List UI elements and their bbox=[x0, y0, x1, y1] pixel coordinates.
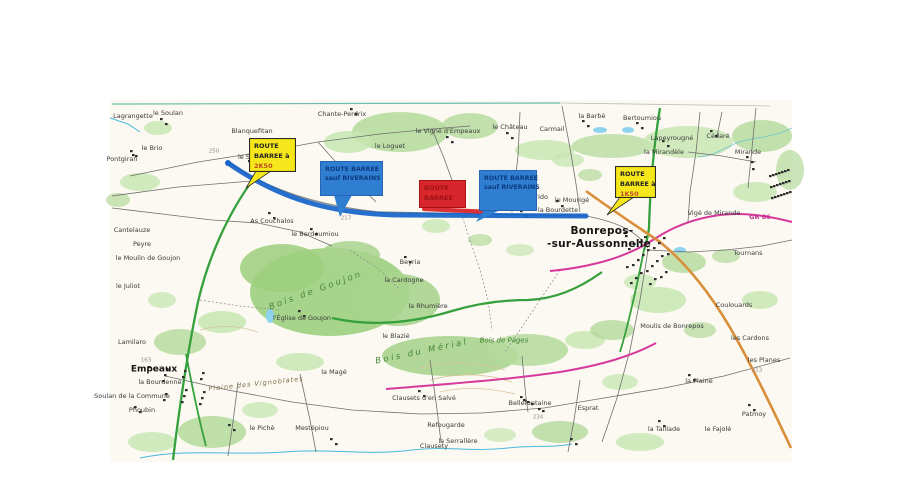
building-dot bbox=[637, 259, 640, 261]
sign-text-line: sauf RIVERAINS bbox=[484, 183, 533, 192]
building-dot bbox=[130, 150, 133, 152]
building-dot bbox=[303, 315, 306, 317]
building-dot bbox=[769, 175, 772, 177]
building-dot bbox=[647, 249, 650, 251]
building-dot bbox=[451, 141, 454, 143]
buildings bbox=[130, 108, 792, 445]
building-dot bbox=[273, 217, 276, 219]
building-dot bbox=[746, 156, 749, 158]
building-dot bbox=[628, 248, 631, 250]
building-dot bbox=[752, 168, 755, 170]
sign-text-line: BARREE à bbox=[620, 180, 652, 190]
building-dot bbox=[633, 243, 636, 245]
building-dot bbox=[587, 125, 590, 127]
building-dot bbox=[409, 261, 412, 263]
building-dot bbox=[202, 372, 205, 374]
sign-text-line: ROUTE BARREE bbox=[325, 165, 379, 174]
sign-distance: 2K50 bbox=[254, 162, 292, 172]
building-dot bbox=[782, 182, 785, 184]
building-dot bbox=[182, 376, 185, 378]
building-dot bbox=[404, 256, 407, 258]
minor-roads bbox=[112, 106, 792, 456]
building-dot bbox=[315, 233, 318, 235]
building-dot bbox=[776, 184, 779, 186]
building-dot bbox=[538, 408, 541, 410]
building-dot bbox=[665, 271, 668, 273]
building-dot bbox=[527, 401, 530, 403]
building-dot bbox=[632, 264, 635, 266]
building-dot bbox=[748, 404, 751, 406]
building-dot bbox=[561, 205, 564, 207]
building-dot bbox=[330, 438, 333, 440]
building-dot bbox=[663, 237, 666, 239]
building-dot bbox=[132, 154, 135, 156]
building-dot bbox=[162, 380, 165, 382]
sign-text-line: sauf RIVERAINS bbox=[325, 174, 379, 183]
building-dot bbox=[642, 254, 645, 256]
building-dot bbox=[771, 197, 774, 199]
building-dot bbox=[556, 200, 559, 202]
route-barree-sauf-riverains-sign-left: ROUTE BARREE sauf RIVERAINS bbox=[320, 161, 383, 196]
building-dot bbox=[183, 395, 186, 397]
building-dot bbox=[658, 420, 661, 422]
building-dot bbox=[630, 282, 633, 284]
building-dot bbox=[640, 272, 643, 274]
building-dot bbox=[160, 118, 163, 120]
building-dot bbox=[582, 120, 585, 122]
building-dot bbox=[688, 374, 691, 376]
scanned-map-page: Lagrangettele Soulanle BrioPontgiranBlan… bbox=[0, 0, 900, 482]
building-dot bbox=[446, 136, 449, 138]
building-dot bbox=[165, 123, 168, 125]
building-dot bbox=[644, 236, 647, 238]
route-barree-sauf-riverains-sign-right: ROUTE BARREE sauf RIVERAINS bbox=[479, 170, 537, 211]
building-dot bbox=[661, 255, 664, 257]
building-dot bbox=[134, 406, 137, 408]
route-barree-sign-west: ROUTE BARREE à 2K50 bbox=[249, 138, 296, 172]
building-dot bbox=[658, 242, 661, 244]
building-dot bbox=[649, 283, 652, 285]
orange-road bbox=[586, 191, 791, 448]
building-dot bbox=[335, 443, 338, 445]
building-dot bbox=[773, 185, 776, 187]
building-dot bbox=[423, 395, 426, 397]
building-dot bbox=[165, 393, 168, 395]
building-dot bbox=[784, 170, 787, 172]
building-dot bbox=[139, 411, 142, 413]
building-dot bbox=[201, 397, 204, 399]
building-dot bbox=[310, 228, 313, 230]
sign-text-line: ROUTE bbox=[254, 142, 292, 152]
building-dot bbox=[635, 277, 638, 279]
building-dot bbox=[710, 130, 713, 132]
building-dot bbox=[575, 443, 578, 445]
building-dot bbox=[774, 196, 777, 198]
building-dot bbox=[653, 247, 656, 249]
building-dot bbox=[624, 232, 627, 234]
building-dot bbox=[715, 135, 718, 137]
building-dot bbox=[164, 374, 167, 376]
building-dot bbox=[770, 186, 773, 188]
building-dot bbox=[418, 390, 421, 392]
building-dot bbox=[641, 127, 644, 129]
building-dot bbox=[185, 389, 188, 391]
sign-text-line: ROUTE BARREE bbox=[484, 174, 533, 183]
building-dot bbox=[542, 410, 545, 412]
building-dot bbox=[777, 195, 780, 197]
building-dot bbox=[786, 192, 789, 194]
building-dot bbox=[506, 132, 509, 134]
building-dot bbox=[184, 370, 187, 372]
building-dot bbox=[751, 161, 754, 163]
building-dot bbox=[663, 425, 666, 427]
building-dot bbox=[788, 180, 791, 182]
building-dot bbox=[228, 424, 231, 426]
building-dot bbox=[163, 399, 166, 401]
building-dot bbox=[753, 409, 756, 411]
building-dot bbox=[651, 265, 654, 267]
building-dot bbox=[166, 368, 169, 370]
building-dot bbox=[667, 145, 670, 147]
building-dot bbox=[355, 113, 358, 115]
building-dot bbox=[523, 399, 526, 401]
building-dot bbox=[268, 212, 271, 214]
building-dot bbox=[775, 173, 778, 175]
closed-section-red-panel: ROUTE BARREE bbox=[419, 180, 466, 208]
building-dot bbox=[298, 310, 301, 312]
building-dot bbox=[780, 194, 783, 196]
building-dot bbox=[350, 108, 353, 110]
building-dot bbox=[667, 253, 670, 255]
building-dot bbox=[654, 278, 657, 280]
building-dot bbox=[660, 276, 663, 278]
building-dot bbox=[662, 140, 665, 142]
building-dot bbox=[639, 241, 642, 243]
sign-text-line: BARREE bbox=[424, 194, 462, 204]
building-dot bbox=[787, 169, 790, 171]
building-dot bbox=[511, 137, 514, 139]
sign-distance: 1K50 bbox=[620, 190, 652, 200]
building-dot bbox=[203, 391, 206, 393]
building-dot bbox=[646, 270, 649, 272]
building-dot bbox=[531, 403, 534, 405]
building-dot bbox=[785, 181, 788, 183]
building-dot bbox=[570, 438, 573, 440]
building-dot bbox=[783, 193, 786, 195]
building-dot bbox=[781, 171, 784, 173]
sign-text-line: ROUTE bbox=[620, 170, 652, 180]
building-dot bbox=[779, 183, 782, 185]
building-dot bbox=[200, 378, 203, 380]
building-dot bbox=[772, 174, 775, 176]
building-dot bbox=[520, 396, 523, 398]
sign-text-line: BARREE à bbox=[254, 152, 292, 162]
building-dot bbox=[148, 366, 151, 368]
building-dot bbox=[693, 379, 696, 381]
building-dot bbox=[625, 235, 628, 237]
building-dot bbox=[135, 155, 138, 157]
topographic-map-canvas bbox=[0, 0, 900, 482]
building-dot bbox=[656, 260, 659, 262]
scan-edge-line bbox=[112, 103, 770, 106]
sign-text-line: ROUTE bbox=[424, 184, 462, 194]
building-dot bbox=[233, 429, 236, 431]
route-barree-sign-east: ROUTE BARREE à 1K50 bbox=[615, 166, 656, 198]
building-dot bbox=[199, 403, 202, 405]
building-dot bbox=[778, 172, 781, 174]
building-dot bbox=[789, 191, 792, 193]
streams bbox=[110, 118, 792, 458]
building-dot bbox=[181, 401, 184, 403]
building-dot bbox=[636, 122, 639, 124]
building-dot bbox=[626, 266, 629, 268]
